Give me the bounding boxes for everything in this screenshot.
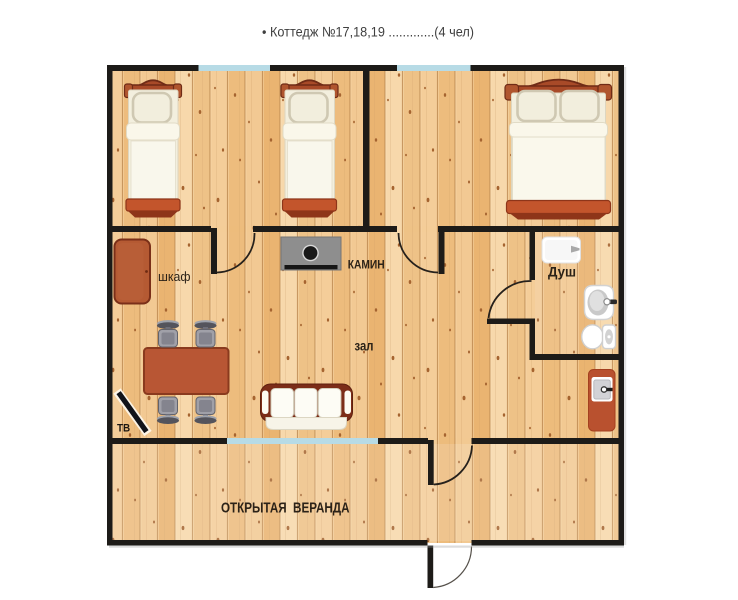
svg-text:зал: зал [355, 338, 374, 354]
svg-text:• Коттедж №17,18,19 ..........: • Коттедж №17,18,19 .............(4 чел) [262, 24, 474, 40]
svg-text:ТВ: ТВ [117, 423, 130, 435]
svg-text:КАМИН: КАМИН [348, 257, 385, 271]
svg-text:Душ: Душ [548, 264, 576, 280]
svg-text:ОТКРЫТАЯ ВЕРАНДА: ОТКРЫТАЯ ВЕРАНДА [221, 500, 350, 517]
svg-text:шкаф: шкаф [158, 270, 191, 284]
